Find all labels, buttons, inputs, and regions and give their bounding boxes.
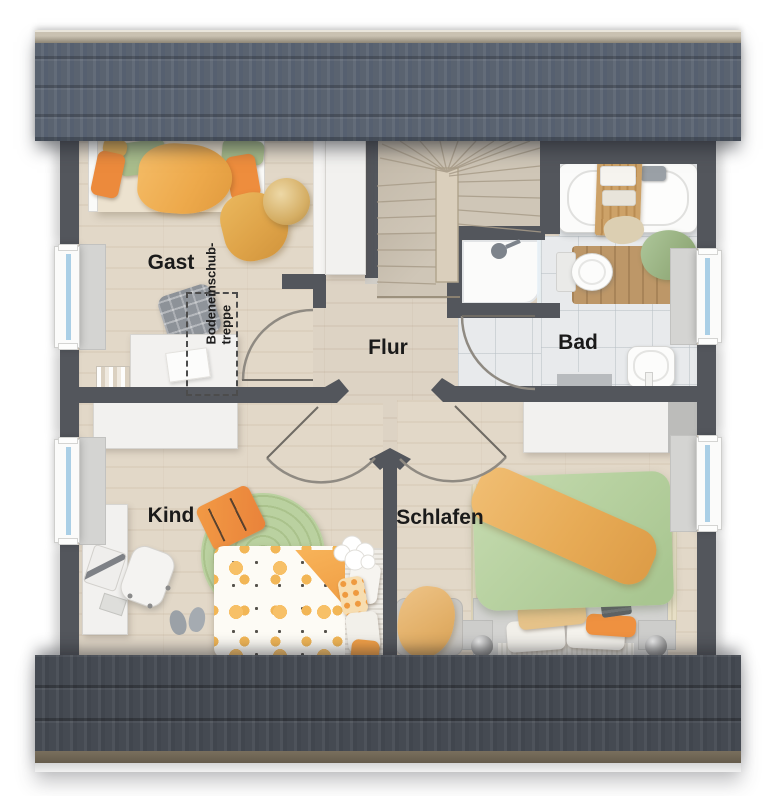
kind-sideboard — [93, 401, 238, 449]
floor-plan: Bodeneinschub- treppe Gast Flur Bad Kind… — [0, 0, 775, 796]
kind-window-glass — [66, 447, 71, 535]
wall-stair-west — [365, 141, 378, 284]
wall-gast-stub-vertical — [313, 274, 326, 308]
bad-window-niche — [670, 248, 697, 345]
shower-wall-top — [447, 226, 545, 240]
attic-hatch-label-line1: Bodeneinschub- — [205, 242, 220, 344]
schlafen-bed-knob-right — [645, 635, 667, 657]
wall-stair-east — [540, 141, 560, 234]
bad-window-cap-top — [698, 248, 718, 255]
schlafen-pillow-orange — [585, 613, 636, 637]
schlafen-bed-knob-left — [471, 635, 493, 657]
schlafen-window-niche — [670, 435, 697, 532]
gast-books — [96, 366, 130, 388]
gast-pouf — [263, 178, 310, 225]
gast-window-cap-bottom — [58, 343, 78, 350]
gast-window-cap-top — [58, 244, 78, 251]
wall-bad-schlafen-divider — [455, 386, 716, 402]
kind-window-niche — [79, 437, 106, 545]
kind-window-cap-top — [58, 437, 78, 444]
stair-niche-cabinet — [325, 139, 366, 275]
wall-kind-schlafen-divider — [383, 459, 397, 655]
kind-window-cap-bottom — [58, 538, 78, 545]
gast-window-niche — [79, 244, 106, 350]
wall-above-bathtub — [559, 141, 697, 164]
wall-left-upper — [60, 141, 79, 244]
attic-hatch-label-line2: treppe — [219, 304, 234, 344]
bathtub-faucet — [640, 166, 666, 181]
toilet-bowl-inner — [578, 259, 606, 285]
shower-glass — [537, 240, 541, 304]
roof-gutter-edge — [35, 763, 741, 772]
bath-caddy-towel-2 — [602, 190, 636, 206]
gast-window-glass — [66, 254, 71, 340]
room-label-schlafen: Schlafen — [396, 506, 484, 530]
room-label-gast: Gast — [148, 251, 195, 275]
wall-right-lower — [697, 532, 716, 655]
wall-stair-west-cap — [365, 278, 378, 284]
roof-band-bottom — [35, 655, 741, 772]
schlafen-window-cap-top — [698, 435, 718, 442]
bad-window-glass — [705, 258, 710, 335]
wall-left-lower — [60, 545, 79, 655]
schlafen-window-glass — [705, 445, 710, 522]
roof-gutter — [35, 751, 741, 763]
shower-tray — [462, 240, 540, 304]
bad-window-cap-bottom — [698, 338, 718, 345]
roof-band-top — [35, 30, 741, 141]
room-label-bad: Bad — [558, 331, 598, 355]
wall-right-upper — [697, 141, 716, 248]
shower-wall-bottom — [447, 303, 560, 318]
attic-hatch-outline: Bodeneinschub- treppe — [186, 292, 238, 396]
schlafen-window-cap-bottom — [698, 525, 718, 532]
roof-top-eave-edge — [35, 137, 741, 141]
bath-caddy-towel-1 — [600, 166, 636, 186]
room-label-kind: Kind — [148, 504, 195, 528]
bad-bench — [557, 372, 612, 387]
room-label-flur: Flur — [368, 336, 408, 360]
bad-floor-doorway — [458, 316, 541, 388]
roof-ridge-cap — [35, 30, 741, 43]
staircase-upper — [377, 141, 541, 234]
schlafen-wardrobe — [523, 401, 672, 453]
